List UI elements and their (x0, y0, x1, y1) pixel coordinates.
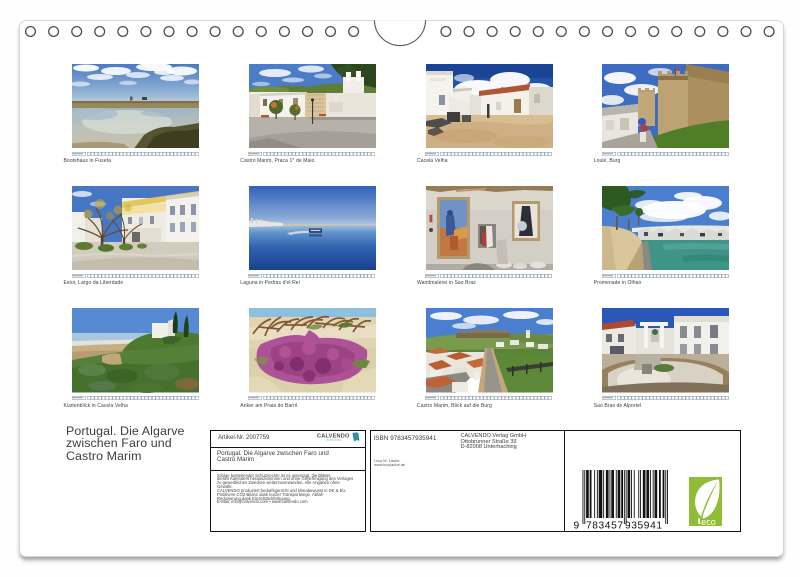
svg-text:eco: eco (701, 516, 716, 526)
svg-text:Dein Spezialverlag: Dein Spezialverlag (326, 439, 341, 441)
